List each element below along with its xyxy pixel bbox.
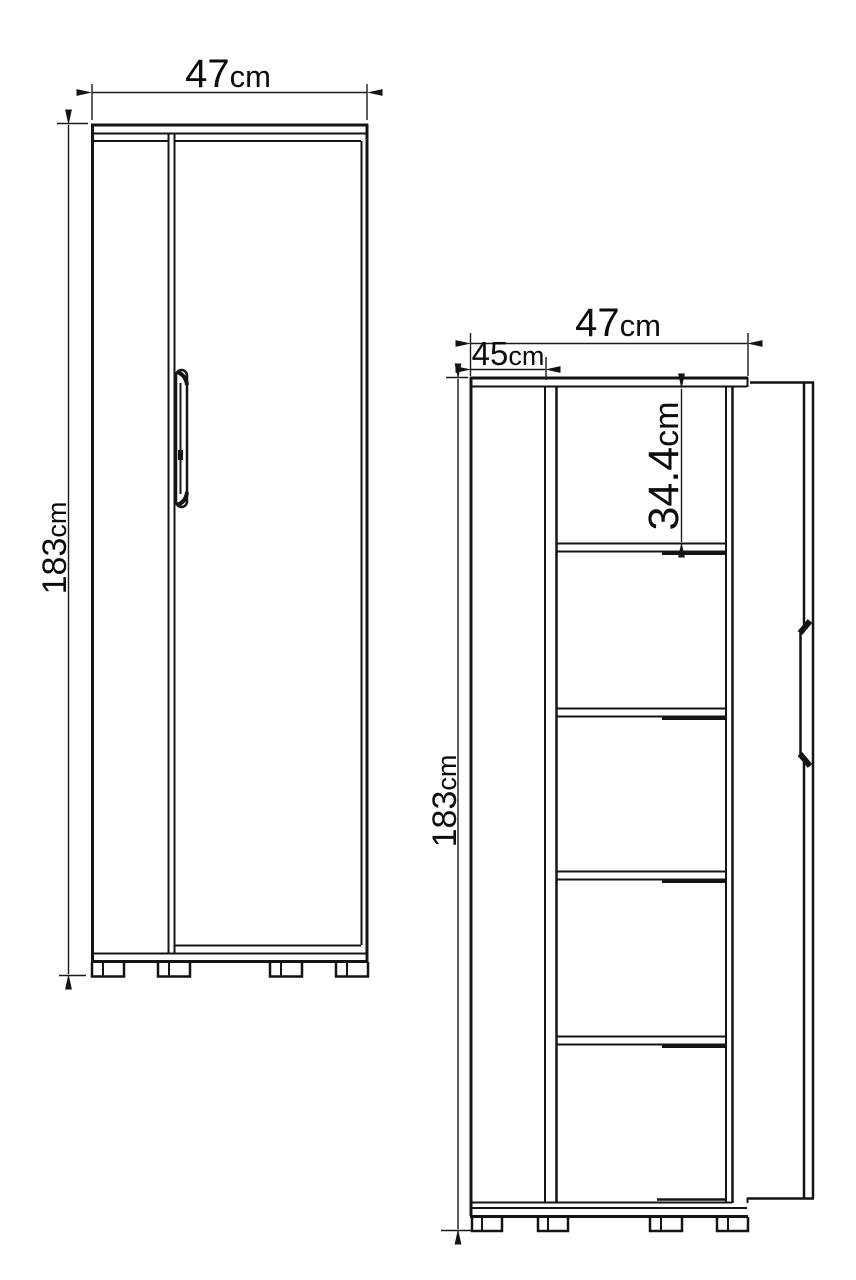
open-depth-label: 45cm [472, 335, 545, 372]
open-height-label: 183cm [426, 755, 464, 848]
open-width-label: 47cm [575, 301, 661, 345]
open-feet [472, 1217, 748, 1231]
door-handle [176, 370, 187, 507]
open-depth-dimension: 45cm [471, 335, 546, 380]
foot [650, 1217, 682, 1231]
closed-width-dimension: 47cm [92, 52, 367, 120]
open-door [747, 382, 814, 1203]
closed-height-dimension: 183cm [36, 124, 88, 976]
foot [92, 962, 124, 977]
open-carcass [470, 377, 748, 1217]
foot [472, 1217, 502, 1231]
shelf-spacing-label: 34.4cm [640, 401, 688, 530]
closed-view: 47cm 183cm [36, 52, 368, 977]
closed-feet [92, 962, 368, 977]
handle-cap-top [800, 621, 810, 633]
open-height-dimension: 183cm [426, 378, 471, 1231]
shelves [557, 544, 726, 1047]
foot [158, 962, 190, 977]
closed-width-label: 47cm [185, 52, 271, 96]
cabinet-technical-drawing: 47cm 183cm [0, 0, 856, 1280]
foot [270, 962, 302, 977]
open-view: 47cm 45cm 183cm 34.4cm [426, 301, 814, 1231]
foot [717, 1217, 748, 1231]
foot [538, 1217, 568, 1231]
handle-cap-bottom [800, 754, 810, 766]
shelf-spacing-dimension: 34.4cm [640, 389, 688, 542]
handle-notch [178, 450, 183, 460]
closed-height-label: 183cm [36, 502, 74, 595]
technical-drawing-page: 47cm 183cm [0, 0, 856, 1280]
foot [336, 962, 368, 977]
closed-carcass [91, 124, 368, 962]
